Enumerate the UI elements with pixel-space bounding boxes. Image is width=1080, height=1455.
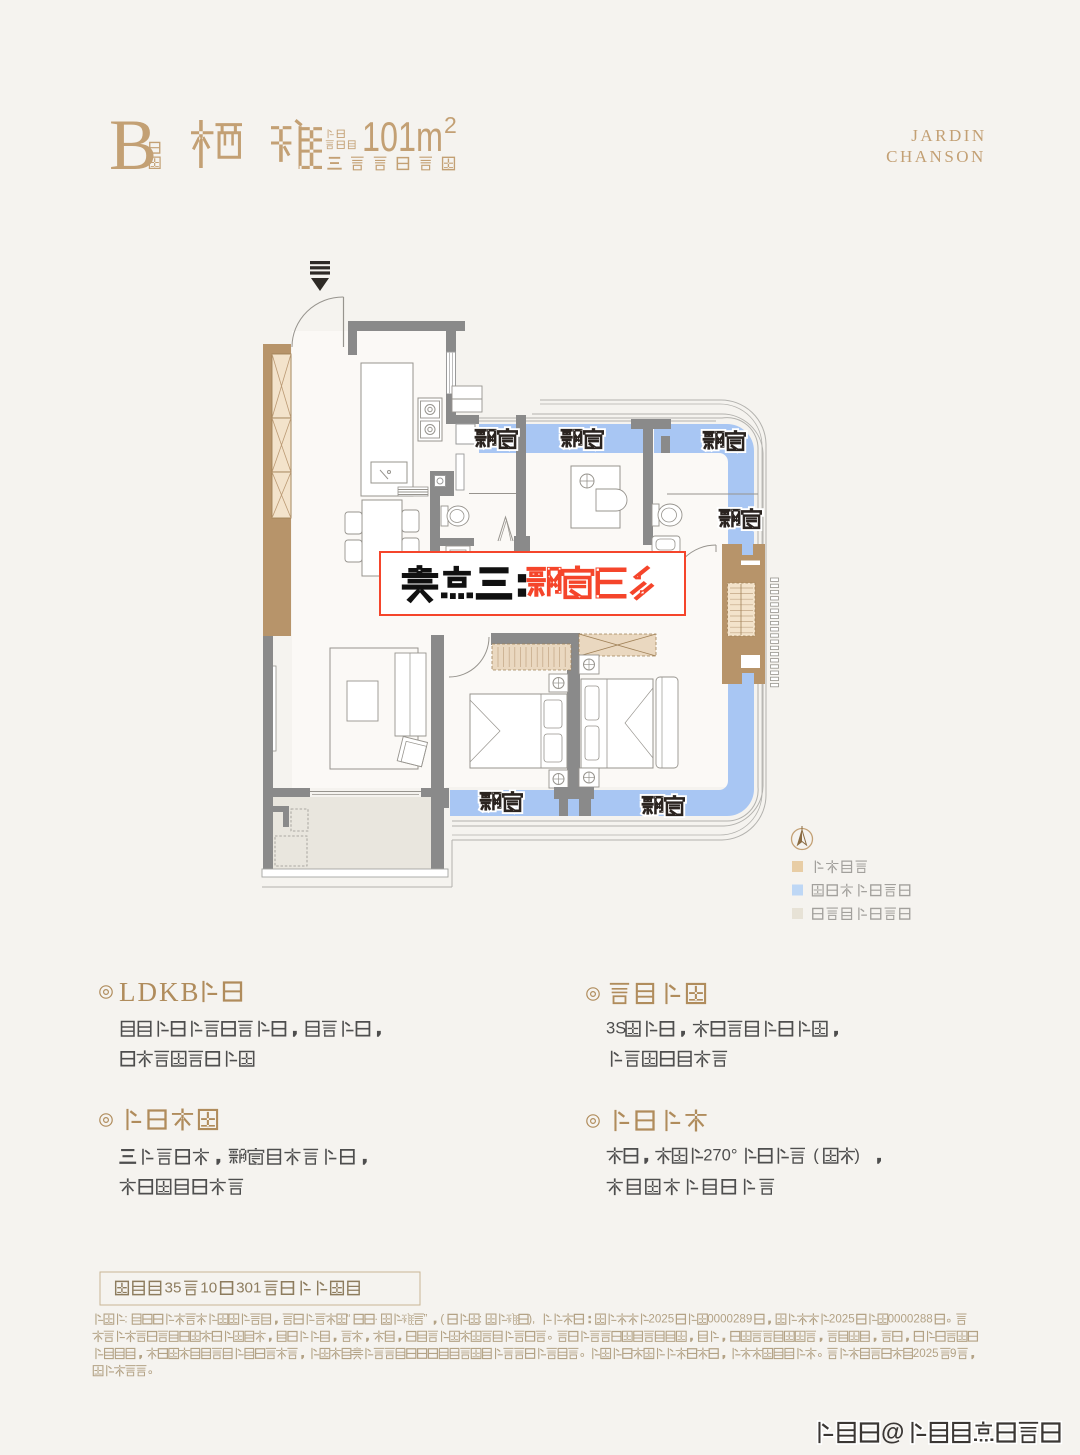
svg-text:·: ·: [374, 1313, 378, 1326]
svg-text:0000289: 0000289: [707, 1313, 752, 1326]
svg-text:101m: 101m: [362, 113, 443, 160]
svg-text::: :: [124, 1313, 127, 1326]
svg-text:2: 2: [444, 112, 457, 138]
svg-text:CHANSON: CHANSON: [886, 147, 986, 166]
svg-text:2025: 2025: [648, 1313, 674, 1326]
svg-text:(: (: [813, 1146, 819, 1165]
svg-text:JARDIN: JARDIN: [911, 126, 986, 145]
svg-text:”: ”: [424, 1313, 428, 1326]
svg-text:2025: 2025: [913, 1347, 939, 1360]
svg-text:@: @: [881, 1419, 904, 1446]
svg-text:): ): [854, 1146, 860, 1165]
svg-text:(: (: [440, 1313, 444, 1326]
svg-text:35: 35: [165, 1280, 182, 1297]
svg-text:3S: 3S: [606, 1019, 626, 1038]
svg-text:LDKB: LDKB: [119, 977, 201, 1007]
svg-text:301: 301: [236, 1280, 261, 1297]
svg-text:270°: 270°: [703, 1146, 737, 1165]
svg-text:),: ),: [528, 1313, 535, 1326]
svg-text:9: 9: [950, 1347, 956, 1360]
svg-text:2025: 2025: [829, 1313, 855, 1326]
svg-text:10: 10: [200, 1280, 217, 1297]
svg-text:0000288: 0000288: [888, 1313, 933, 1326]
